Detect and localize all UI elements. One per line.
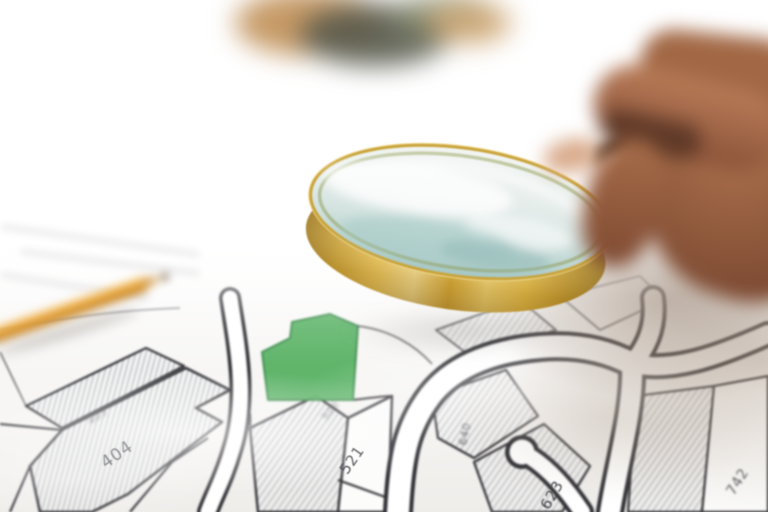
hand	[0, 0, 768, 512]
photo-scene: 403 404 520 521 640 623 742	[0, 0, 768, 512]
